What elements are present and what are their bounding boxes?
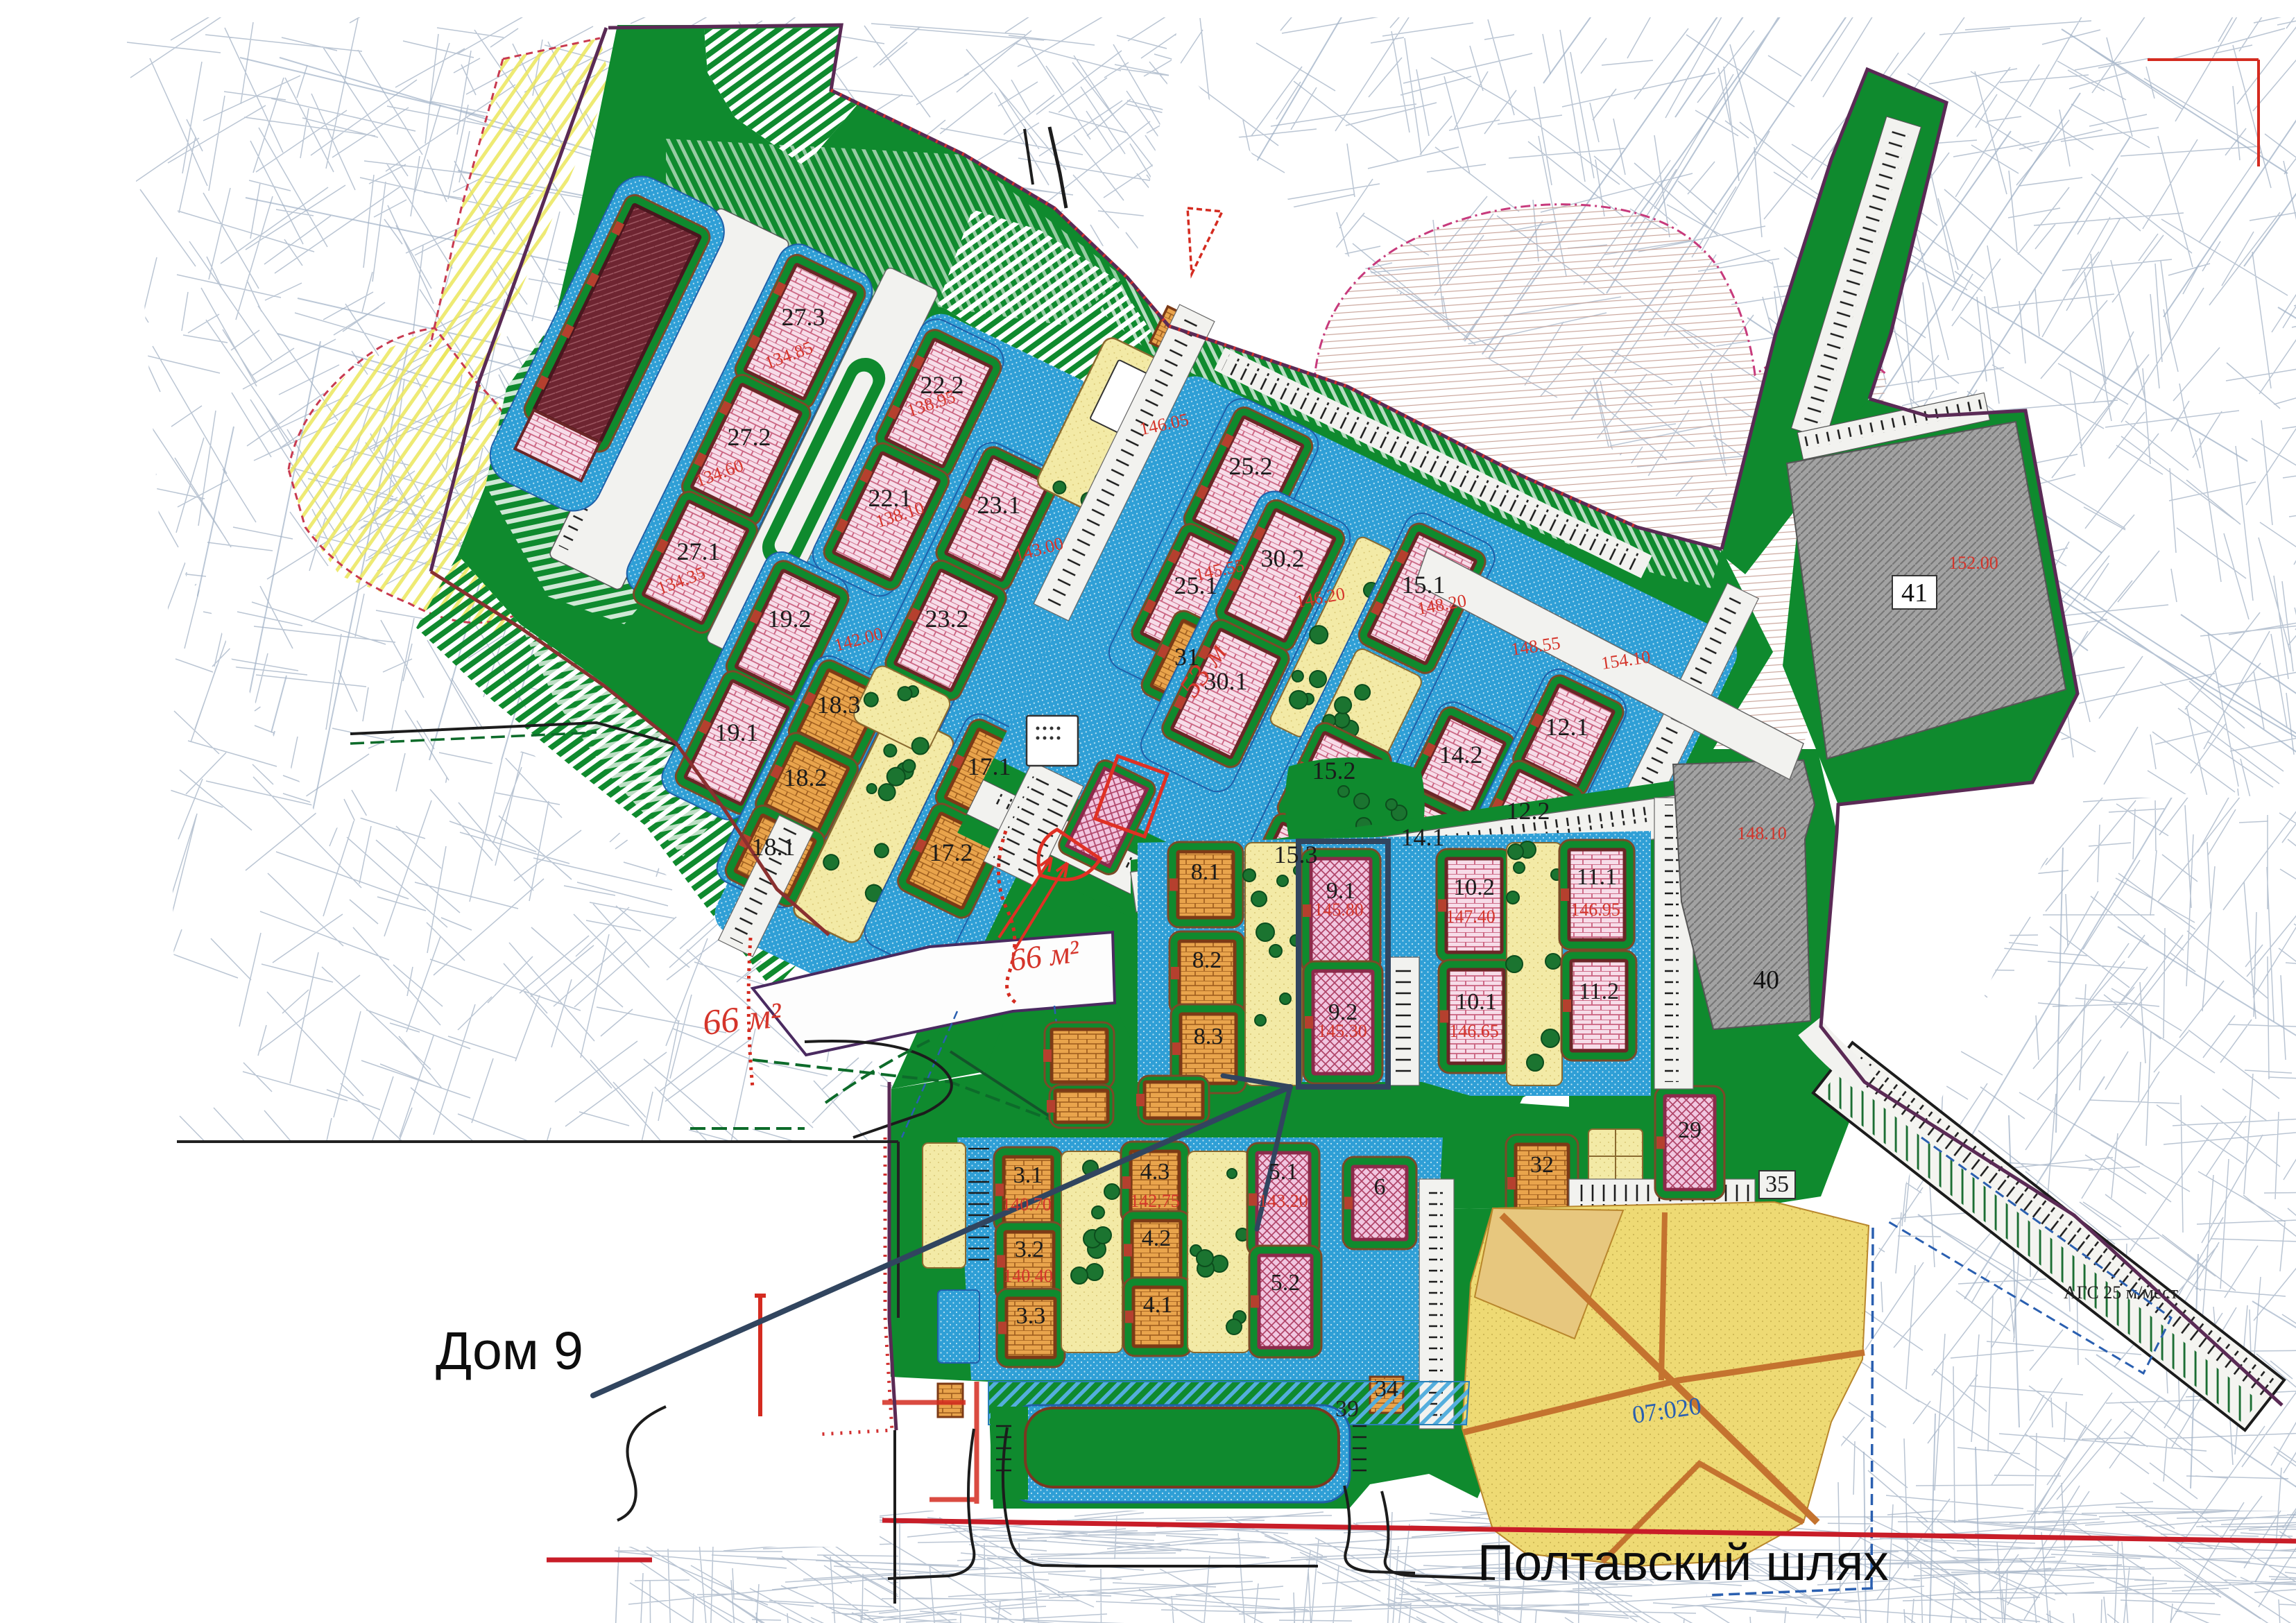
svg-text:18.1: 18.1 [752,833,796,861]
svg-text:5.1: 5.1 [1269,1159,1299,1185]
svg-text:23.1: 23.1 [977,491,1021,519]
svg-text:145.80: 145.80 [1314,900,1364,920]
svg-text:140.40: 140.40 [1003,1266,1053,1286]
svg-text:19.2: 19.2 [768,605,812,633]
svg-text:146.95: 146.95 [1570,900,1620,920]
svg-text:145.30: 145.30 [1317,1021,1367,1041]
svg-text:17.1: 17.1 [968,753,1011,780]
svg-text:146.65: 146.65 [1449,1021,1499,1041]
svg-text:148.10: 148.10 [1737,823,1787,843]
svg-text:Дом 9: Дом 9 [436,1321,583,1381]
svg-text:27.3: 27.3 [782,303,825,331]
svg-text:4.3: 4.3 [1140,1159,1170,1185]
svg-text:3.2: 3.2 [1015,1237,1045,1262]
svg-text:3.3: 3.3 [1016,1303,1046,1329]
svg-text:140.70: 140.70 [1002,1194,1052,1214]
svg-text:8.3: 8.3 [1194,1024,1224,1049]
svg-text:30.2: 30.2 [1261,544,1305,572]
svg-text:41: 41 [1901,578,1928,608]
svg-text:3.1: 3.1 [1013,1162,1043,1188]
svg-text:147.40: 147.40 [1446,907,1496,927]
svg-text:4.1: 4.1 [1143,1292,1173,1318]
svg-text:11.2: 11.2 [1579,979,1619,1004]
svg-text:39: 39 [1335,1396,1359,1422]
svg-text:18.3: 18.3 [817,691,861,719]
svg-text:40: 40 [1753,965,1779,995]
svg-text:23.2: 23.2 [925,605,969,633]
svg-text:32: 32 [1530,1152,1554,1178]
svg-text:34: 34 [1375,1376,1398,1402]
svg-text:12.1: 12.1 [1545,713,1589,741]
svg-text:10.1: 10.1 [1455,989,1497,1015]
svg-text:19.1: 19.1 [715,719,759,746]
svg-text:6: 6 [1374,1174,1386,1200]
svg-text:17.2: 17.2 [929,839,973,866]
svg-text:142.75: 142.75 [1130,1191,1180,1211]
svg-text:5.2: 5.2 [1271,1270,1301,1296]
svg-text:15.3: 15.3 [1274,841,1318,868]
svg-text:14.2: 14.2 [1439,741,1483,768]
svg-text:10.2: 10.2 [1453,875,1495,900]
svg-text:66 м²: 66 м² [701,995,785,1043]
svg-text:8.2: 8.2 [1192,947,1222,973]
svg-text:14.1: 14.1 [1401,823,1445,851]
svg-text:29: 29 [1678,1117,1702,1143]
svg-text:15.2: 15.2 [1312,757,1356,784]
svg-text:18.2: 18.2 [784,764,828,791]
svg-text:25.2: 25.2 [1229,452,1273,480]
svg-text:4.2: 4.2 [1142,1226,1172,1251]
svg-text:11.1: 11.1 [1577,864,1617,890]
svg-text:143.20: 143.20 [1258,1191,1308,1211]
svg-text:152.00: 152.00 [1948,553,1998,573]
svg-text:35: 35 [1765,1171,1789,1197]
svg-text:27.2: 27.2 [728,423,771,451]
svg-text:Полтавский шлях: Полтавский шлях [1477,1535,1889,1591]
svg-text:8.1: 8.1 [1191,859,1221,885]
svg-text:12.2: 12.2 [1507,797,1550,825]
svg-text:27.1: 27.1 [677,538,721,565]
